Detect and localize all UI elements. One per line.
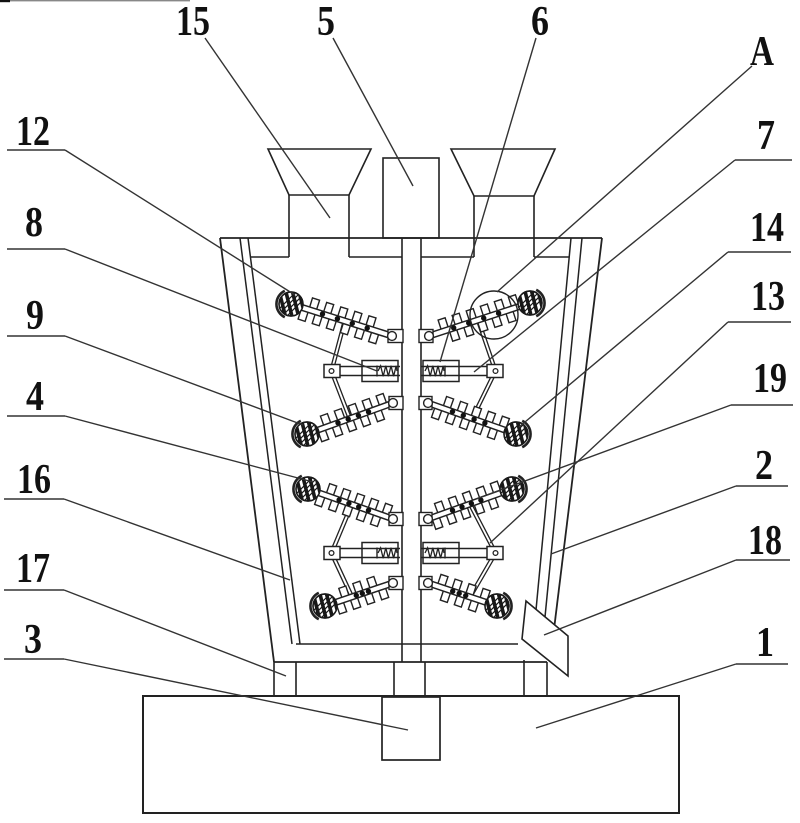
svg-text:13: 13 xyxy=(751,274,785,320)
svg-text:4: 4 xyxy=(26,374,44,420)
svg-text:17: 17 xyxy=(16,546,50,592)
svg-text:1: 1 xyxy=(756,620,774,666)
svg-text:8: 8 xyxy=(25,200,43,246)
svg-text:5: 5 xyxy=(317,0,335,45)
svg-text:2: 2 xyxy=(755,443,773,489)
svg-text:12: 12 xyxy=(16,109,50,155)
svg-text:7: 7 xyxy=(757,113,775,159)
svg-text:A: A xyxy=(750,29,775,75)
svg-text:19: 19 xyxy=(753,356,787,402)
svg-text:14: 14 xyxy=(750,205,784,251)
svg-text:3: 3 xyxy=(24,617,42,663)
svg-text:6: 6 xyxy=(531,0,549,45)
svg-text:9: 9 xyxy=(26,293,44,339)
svg-text:16: 16 xyxy=(17,457,51,503)
svg-text:18: 18 xyxy=(748,518,782,564)
